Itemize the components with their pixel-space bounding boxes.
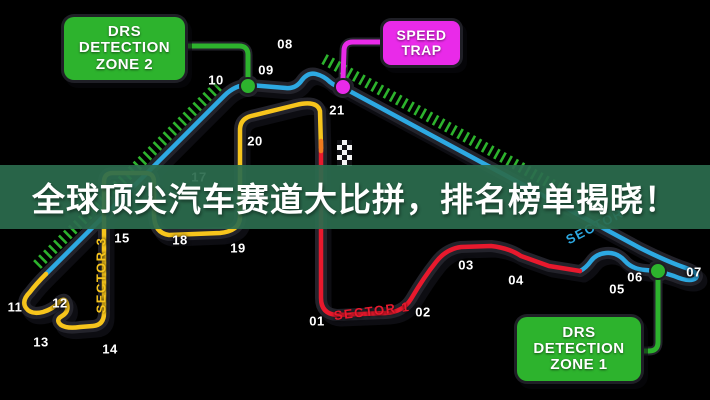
drs-detection-point-2 — [240, 78, 256, 94]
drs-zone-1-line1: DRS — [562, 325, 595, 341]
speed-trap-point — [335, 79, 351, 95]
speed-trap-callout: SPEED TRAP — [383, 21, 460, 65]
drs-detection-zone-1-callout: DRS DETECTION ZONE 1 — [517, 317, 641, 381]
drs-zone-2-line2: DETECTION — [79, 40, 170, 56]
turn-label-12: 12 — [52, 296, 67, 311]
turn-label-14: 14 — [102, 342, 117, 357]
speed-trap-line2: TRAP — [401, 43, 441, 58]
turn-label-11: 11 — [8, 300, 23, 315]
turn-label-08: 08 — [277, 37, 292, 52]
speed-trap-line1: SPEED — [397, 28, 447, 43]
drs-detection-point-1 — [650, 263, 666, 279]
headline-text: 全球顶尖汽车赛道大比拼，排名榜单揭晓！ — [32, 173, 678, 221]
drs-zone-2-line1: DRS — [108, 24, 141, 40]
turn-label-10: 10 — [208, 73, 223, 88]
turn-label-07: 07 — [686, 265, 701, 280]
drs-detection-zone-2-callout: DRS DETECTION ZONE 2 — [64, 17, 185, 80]
turn-label-02: 02 — [415, 305, 430, 320]
drs-zone-1-line2: DETECTION — [533, 341, 624, 357]
drs-zone-1-line3: ZONE 1 — [550, 357, 607, 373]
drs-zone-1-connector-line — [642, 280, 658, 351]
turn-label-09: 09 — [258, 63, 273, 78]
sector-3-label: SECTOR 3 — [94, 237, 109, 314]
turn-label-19: 19 — [230, 241, 245, 256]
turn-label-18: 18 — [172, 233, 187, 248]
turn-label-04: 04 — [508, 273, 523, 288]
headline-banner: 全球顶尖汽车赛道大比拼，排名榜单揭晓！ — [0, 165, 710, 229]
turn-label-21: 21 — [329, 103, 344, 118]
turn-label-01: 01 — [309, 314, 324, 329]
turn-label-20: 20 — [247, 134, 262, 149]
track-map: 0102030405060708091011121314151718192021… — [0, 0, 710, 400]
drs-zone-2-line3: ZONE 2 — [96, 57, 153, 73]
turn-label-15: 15 — [114, 231, 129, 246]
start-finish-flag-icon — [337, 140, 352, 166]
turn-label-06: 06 — [627, 270, 642, 285]
turn-label-13: 13 — [33, 335, 48, 350]
turn-label-05: 05 — [609, 282, 624, 297]
turn-label-03: 03 — [458, 258, 473, 273]
